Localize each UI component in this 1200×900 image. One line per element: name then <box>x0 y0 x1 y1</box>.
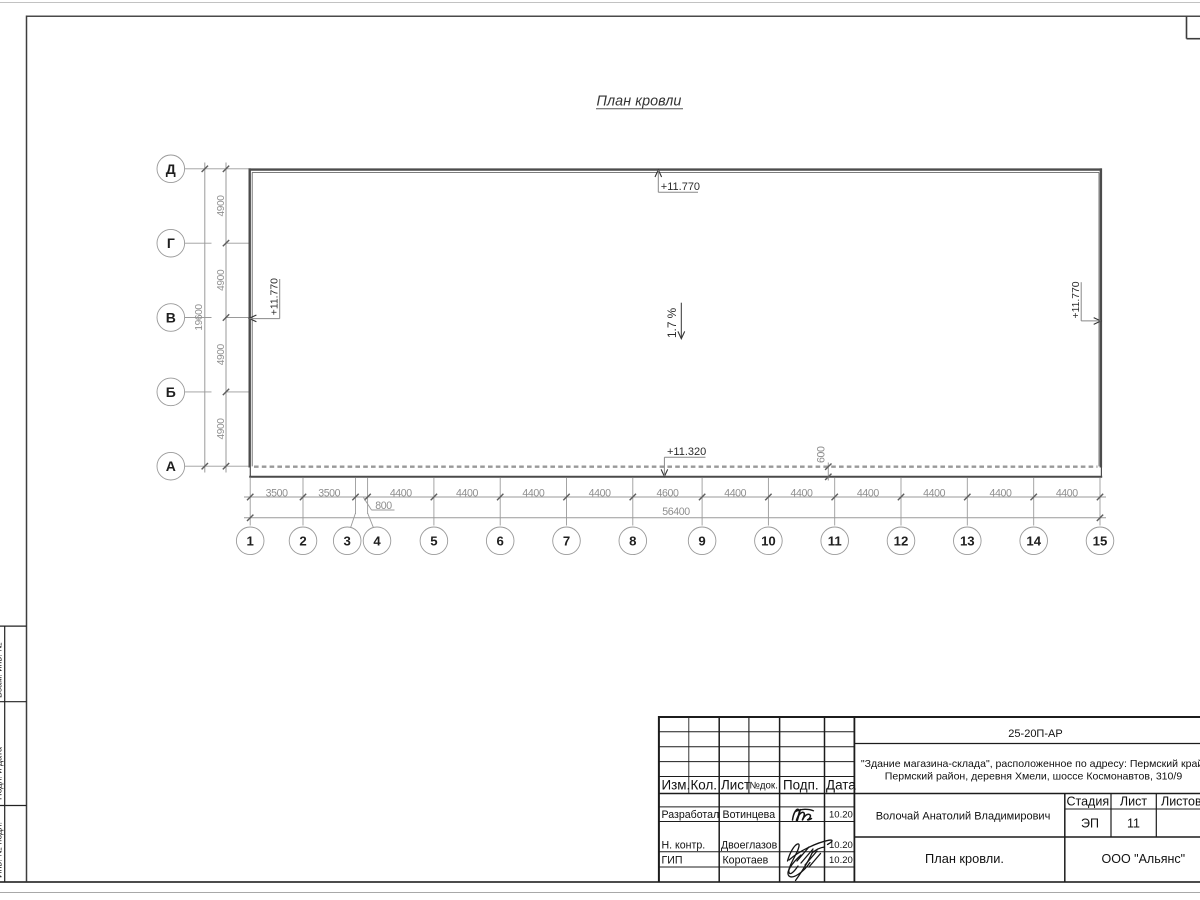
svg-text:4: 4 <box>373 534 381 549</box>
svg-text:25-20П-АР: 25-20П-АР <box>1008 728 1062 740</box>
svg-text:10.20: 10.20 <box>829 840 853 851</box>
svg-text:Двоеглазов: Двоеглазов <box>721 840 778 852</box>
svg-text:2: 2 <box>299 534 306 549</box>
svg-text:11: 11 <box>828 534 842 549</box>
svg-text:4400: 4400 <box>857 487 879 499</box>
svg-text:4400: 4400 <box>724 487 746 499</box>
svg-text:№док.: №док. <box>750 780 778 791</box>
svg-text:7: 7 <box>563 534 570 549</box>
svg-text:+11.770: +11.770 <box>661 181 700 193</box>
svg-text:56400: 56400 <box>662 506 690 518</box>
svg-text:4600: 4600 <box>657 487 679 499</box>
svg-text:4900: 4900 <box>216 269 227 291</box>
svg-text:Лист: Лист <box>1120 795 1147 809</box>
svg-text:10: 10 <box>761 534 776 549</box>
svg-text:"Здание магазина-склада", расп: "Здание магазина-склада", расположенное … <box>861 758 1200 770</box>
svg-text:Волочай Анатолий Владимирович: Волочай Анатолий Владимирович <box>876 810 1051 822</box>
svg-text:Б: Б <box>166 384 176 400</box>
svg-text:Подп.: Подп. <box>783 777 819 792</box>
svg-text:Вотинцева: Вотинцева <box>723 809 776 821</box>
svg-text:План кровли.: План кровли. <box>925 851 1004 866</box>
svg-text:4400: 4400 <box>791 487 813 499</box>
svg-text:4400: 4400 <box>456 487 478 499</box>
svg-text:Стадия: Стадия <box>1066 795 1109 809</box>
svg-text:6: 6 <box>497 534 504 549</box>
svg-text:ЭП: ЭП <box>1081 817 1099 831</box>
svg-text:+11.770: +11.770 <box>269 278 280 315</box>
svg-text:8: 8 <box>629 534 636 549</box>
svg-text:4400: 4400 <box>990 487 1012 499</box>
svg-text:4900: 4900 <box>216 343 227 365</box>
svg-text:Подп. и дата: Подп. и дата <box>0 747 4 800</box>
svg-text:Д: Д <box>166 161 176 177</box>
svg-text:14: 14 <box>1026 534 1041 549</box>
svg-text:+11.770: +11.770 <box>1071 281 1082 318</box>
svg-text:ООО "Альянс": ООО "Альянс" <box>1102 852 1186 866</box>
svg-text:Пермский район, деревня Хмели,: Пермский район, деревня Хмели, шоссе Кос… <box>885 771 1183 783</box>
svg-text:Кол.: Кол. <box>691 777 718 792</box>
svg-text:4900: 4900 <box>216 195 227 217</box>
svg-text:5: 5 <box>430 534 437 549</box>
svg-text:В: В <box>166 310 176 326</box>
svg-text:Изм.: Изм. <box>662 777 691 792</box>
svg-text:Взам. инв. №: Взам. инв. № <box>0 642 4 698</box>
svg-text:Н. контр.: Н. контр. <box>662 840 706 852</box>
svg-text:800: 800 <box>375 500 392 512</box>
svg-text:Лист: Лист <box>721 777 750 792</box>
svg-text:Дата: Дата <box>826 777 856 792</box>
svg-text:ГИП: ГИП <box>662 855 683 867</box>
svg-text:10.20: 10.20 <box>829 855 853 866</box>
svg-text:План кровли: План кровли <box>597 94 682 110</box>
svg-text:А: А <box>166 458 176 474</box>
svg-text:Инв. № подл.: Инв. № подл. <box>0 822 4 878</box>
svg-text:1: 1 <box>247 534 254 549</box>
svg-text:4400: 4400 <box>390 487 412 499</box>
svg-text:4400: 4400 <box>1056 487 1078 499</box>
svg-text:3500: 3500 <box>318 487 340 499</box>
svg-text:15: 15 <box>1093 534 1108 549</box>
svg-text:10.20: 10.20 <box>829 810 853 821</box>
svg-text:Коротаев: Коротаев <box>723 855 769 867</box>
svg-text:4400: 4400 <box>923 487 945 499</box>
svg-text:19600: 19600 <box>194 304 205 331</box>
svg-text:4400: 4400 <box>522 487 544 499</box>
svg-text:+11.320: +11.320 <box>667 446 706 458</box>
svg-text:13: 13 <box>960 534 975 549</box>
svg-text:12: 12 <box>894 534 909 549</box>
svg-text:Листов: Листов <box>1161 795 1200 809</box>
svg-text:11: 11 <box>1127 817 1140 831</box>
svg-text:3: 3 <box>344 534 351 549</box>
svg-text:Г: Г <box>167 235 175 251</box>
svg-text:4900: 4900 <box>216 418 227 440</box>
svg-text:4400: 4400 <box>589 487 611 499</box>
svg-text:9: 9 <box>698 534 705 549</box>
svg-text:1.7 %: 1.7 % <box>665 307 679 338</box>
svg-text:Разработал: Разработал <box>662 809 720 821</box>
svg-text:600: 600 <box>815 446 827 463</box>
svg-text:3500: 3500 <box>266 487 288 499</box>
